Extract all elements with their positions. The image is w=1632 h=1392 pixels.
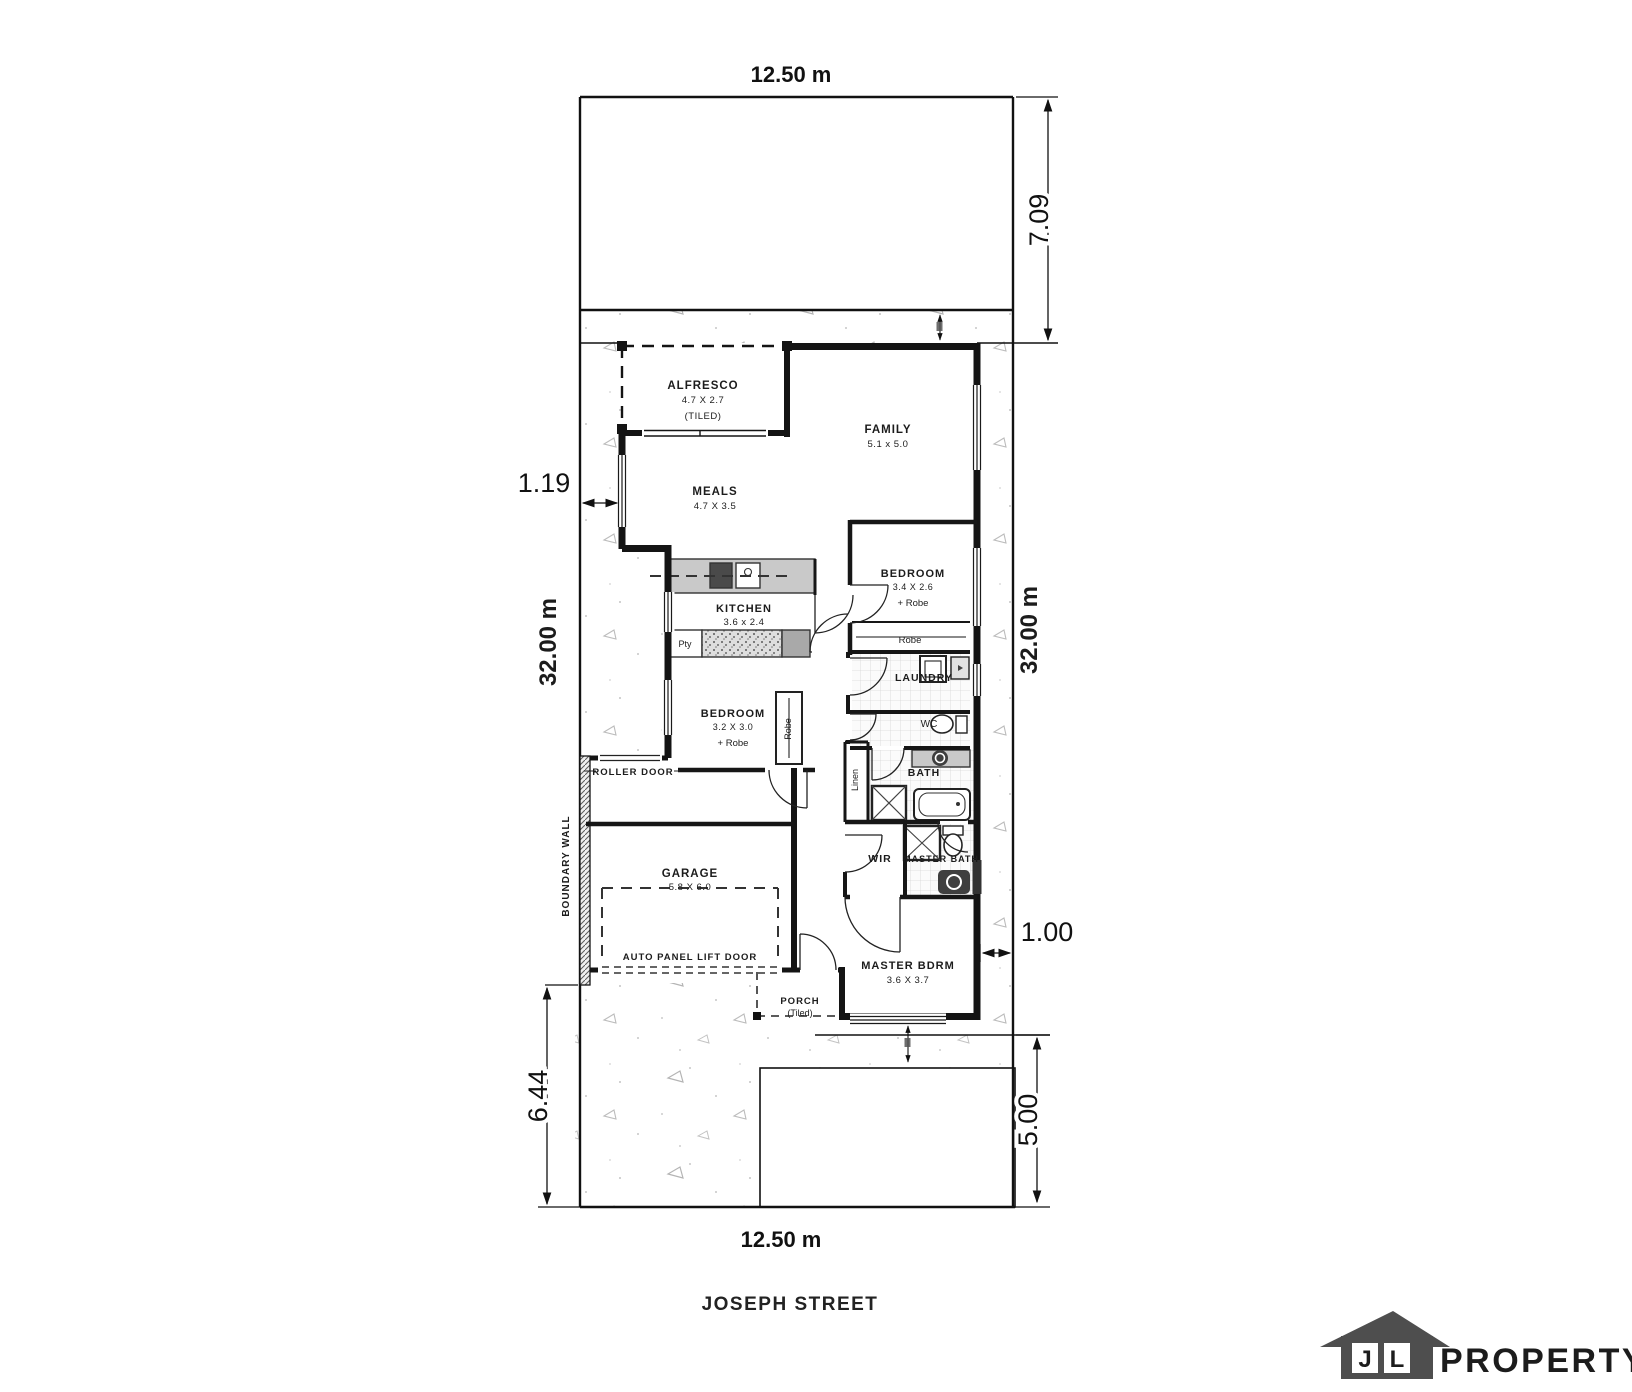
street-name: JOSEPH STREET bbox=[702, 1294, 879, 1315]
robe-side-label: Robe bbox=[783, 718, 793, 740]
garage-size: 5.8 X 6.0 bbox=[669, 882, 712, 893]
bedroom2-label: BEDROOM bbox=[701, 708, 765, 720]
driveway-crossover bbox=[760, 1068, 1015, 1207]
bedroom3-label: BEDROOM bbox=[881, 568, 945, 580]
dim-front-left: 6.44 bbox=[523, 1070, 553, 1123]
laundry-label: LAUNDRY bbox=[895, 672, 953, 684]
dim-left-setback: 1.19 bbox=[518, 468, 571, 498]
basin-icon bbox=[932, 750, 948, 766]
logo-initial-j: J bbox=[1358, 1346, 1371, 1373]
kitchen-bench bbox=[702, 630, 782, 657]
alfresco-size: 4.7 X 2.7 bbox=[682, 395, 725, 406]
kitchen-label: KITCHEN bbox=[716, 603, 772, 615]
dim-lot-width-bottom: 12.50 m bbox=[741, 1227, 822, 1252]
bath-label: BATH bbox=[908, 767, 940, 779]
dim-side-right: 32.00 m bbox=[1016, 586, 1043, 674]
master-bdrm-size: 3.6 X 3.7 bbox=[887, 975, 930, 986]
bathtub-icon bbox=[914, 789, 970, 820]
wir-label: WIR bbox=[868, 853, 891, 865]
kitchen-bench-end bbox=[782, 630, 810, 657]
master-bath-label: MASTER BATH bbox=[903, 854, 979, 864]
porch-label: PORCH bbox=[780, 996, 819, 1007]
mb-toilet-icon bbox=[944, 834, 962, 856]
boundary-wall-hatch bbox=[580, 756, 590, 985]
porch-note: (Tiled) bbox=[787, 1008, 812, 1018]
floor-plan-canvas: ALFRESCO 4.7 X 2.7 (TILED) FAMILY 5.1 x … bbox=[0, 0, 1632, 1392]
boundary-wall-label: BOUNDARY WALL bbox=[561, 815, 572, 916]
family-label: FAMILY bbox=[864, 424, 911, 436]
dim-right-setback: 1.00 bbox=[1021, 917, 1074, 947]
master-bdrm-label: MASTER BDRM bbox=[861, 960, 955, 972]
roller-door-label: ROLLER DOOR bbox=[592, 767, 673, 778]
alfresco-label: ALFRESCO bbox=[667, 380, 738, 392]
dim-side-left: 32.00 m bbox=[535, 598, 562, 686]
dim-front-right: 5.00 bbox=[1013, 1094, 1043, 1147]
alfresco-note: (TILED) bbox=[685, 411, 722, 422]
bedroom2-robe-note: + Robe bbox=[718, 738, 749, 749]
pantry-label: Pty bbox=[678, 639, 692, 649]
logo-word: PROPERTY bbox=[1440, 1342, 1632, 1380]
auto-panel-lift-door-label: AUTO PANEL LIFT DOOR bbox=[623, 952, 758, 963]
garage-label: GARAGE bbox=[662, 868, 718, 880]
dim-lot-width-top: 12.50 m bbox=[751, 62, 832, 87]
linen-label: Linen bbox=[850, 769, 860, 791]
floor-plan-drawing: ALFRESCO 4.7 X 2.7 (TILED) FAMILY 5.1 x … bbox=[0, 0, 1632, 1392]
bedroom2-size: 3.2 X 3.0 bbox=[713, 722, 754, 732]
family-size: 5.1 x 5.0 bbox=[868, 439, 909, 450]
kitchen-size: 3.6 x 2.4 bbox=[724, 617, 765, 628]
jl-property-logo: J L PROPERTY bbox=[1320, 1311, 1632, 1380]
meals-label: MEALS bbox=[692, 486, 737, 498]
obscure-window bbox=[973, 860, 982, 894]
bedroom3-robe-note: + Robe bbox=[898, 598, 929, 609]
meals-size: 4.7 X 3.5 bbox=[694, 501, 737, 512]
wc-label: WC bbox=[921, 719, 938, 730]
logo-initial-l: L bbox=[1390, 1346, 1405, 1373]
bedroom3-size: 3.4 X 2.6 bbox=[893, 582, 934, 592]
mb-basin-icon bbox=[938, 870, 970, 894]
robe-label: Robe bbox=[899, 635, 922, 646]
dim-rear-setback: 7.09 bbox=[1024, 194, 1054, 247]
